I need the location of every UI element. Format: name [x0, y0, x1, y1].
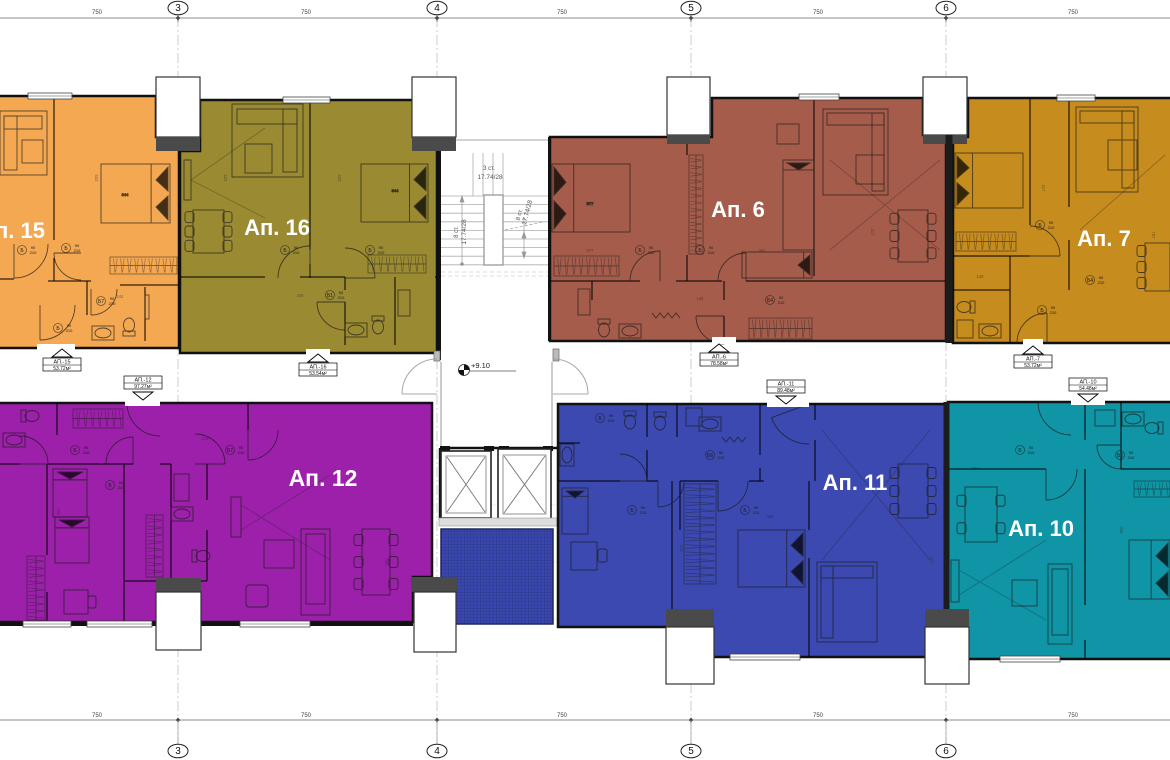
svg-text:3 ст.: 3 ст. — [483, 166, 495, 172]
svg-text:Ап. 16: Ап. 16 — [244, 215, 310, 240]
svg-text:4: 4 — [434, 3, 440, 14]
svg-text:Б6: Б6 — [707, 453, 713, 459]
svg-text:6: 6 — [943, 746, 949, 757]
svg-text:Ап. 7: Ап. 7 — [1077, 226, 1131, 251]
svg-text:210: 210 — [66, 328, 73, 333]
svg-text:414: 414 — [679, 545, 684, 553]
svg-text:97.27м²: 97.27м² — [134, 384, 152, 390]
svg-text:89.48м²: 89.48м² — [777, 388, 795, 394]
svg-text:53.54м²: 53.54м² — [309, 371, 327, 377]
svg-text:АП.-16: АП.-16 — [309, 365, 326, 371]
svg-text:244: 244 — [117, 294, 125, 299]
svg-text:Б7: Б7 — [98, 299, 104, 305]
svg-text:750: 750 — [92, 10, 103, 16]
svg-text:417: 417 — [929, 557, 934, 565]
svg-text:210: 210 — [1048, 225, 1055, 230]
svg-text:750: 750 — [813, 713, 824, 719]
svg-text:317: 317 — [870, 229, 875, 237]
svg-text:345: 345 — [384, 559, 389, 567]
svg-text:750: 750 — [301, 10, 312, 16]
svg-text:Ап. 6: Ап. 6 — [711, 197, 765, 222]
svg-text:750: 750 — [557, 713, 568, 719]
svg-text:53.72м²: 53.72м² — [53, 366, 71, 372]
svg-text:750: 750 — [1068, 10, 1079, 16]
svg-text:210: 210 — [718, 455, 725, 460]
svg-text:54.48м²: 54.48м² — [1079, 386, 1097, 392]
svg-text:248: 248 — [297, 293, 305, 298]
svg-text:210: 210 — [378, 250, 385, 255]
svg-text:210: 210 — [708, 250, 715, 255]
svg-text:210: 210 — [293, 250, 300, 255]
svg-text:577: 577 — [587, 248, 595, 253]
svg-text:417: 417 — [1041, 185, 1046, 193]
svg-text:210: 210 — [1128, 455, 1135, 460]
svg-text:Б7: Б7 — [227, 448, 233, 454]
svg-text:АП.-6: АП.-6 — [712, 355, 726, 361]
svg-text:17.74/28: 17.74/28 — [461, 219, 468, 245]
svg-text:522: 522 — [223, 175, 228, 183]
svg-text:АП.-12: АП.-12 — [134, 378, 151, 384]
svg-text:210: 210 — [83, 450, 90, 455]
svg-text:Ап. 11: Ап. 11 — [823, 470, 888, 495]
svg-text:6: 6 — [943, 3, 949, 14]
svg-text:3: 3 — [175, 3, 181, 14]
svg-text:210: 210 — [238, 450, 245, 455]
svg-text:Ап. 10: Ап. 10 — [1008, 516, 1074, 541]
svg-text:АП.-11: АП.-11 — [778, 382, 795, 388]
svg-text:757: 757 — [1151, 232, 1156, 240]
svg-text:АП.-7: АП.-7 — [1026, 357, 1040, 363]
svg-text:АП.-15: АП.-15 — [53, 360, 70, 366]
svg-text:148: 148 — [697, 296, 705, 301]
svg-text:210: 210 — [1098, 280, 1105, 285]
svg-text:210: 210 — [640, 510, 647, 515]
svg-text:216: 216 — [202, 436, 210, 441]
svg-text:Б4: Б4 — [1087, 278, 1093, 284]
svg-text:АП.-10: АП.-10 — [1079, 380, 1096, 386]
svg-text:750: 750 — [1068, 713, 1079, 719]
svg-text:+9.10: +9.10 — [471, 361, 490, 370]
svg-text:210: 210 — [109, 301, 116, 306]
svg-text:17.74/28: 17.74/28 — [477, 174, 503, 181]
svg-text:210: 210 — [648, 250, 655, 255]
svg-text:358: 358 — [767, 514, 775, 519]
svg-text:344: 344 — [122, 192, 129, 197]
svg-text:210: 210 — [608, 418, 615, 423]
svg-text:345: 345 — [56, 509, 61, 517]
svg-text:210: 210 — [30, 250, 37, 255]
svg-text:750: 750 — [557, 10, 568, 16]
svg-text:210: 210 — [753, 510, 760, 515]
svg-text:4: 4 — [434, 746, 440, 757]
svg-text:5: 5 — [688, 3, 694, 14]
svg-text:210: 210 — [74, 248, 81, 253]
svg-text:522: 522 — [337, 175, 342, 183]
svg-text:148: 148 — [977, 274, 985, 279]
svg-text:3: 3 — [175, 746, 181, 757]
svg-text:п. 15: п. 15 — [0, 218, 45, 243]
svg-text:Б1: Б1 — [327, 293, 333, 299]
svg-text:750: 750 — [813, 10, 824, 16]
svg-text:750: 750 — [301, 713, 312, 719]
svg-text:78.58м²: 78.58м² — [710, 361, 728, 367]
svg-text:53.72м²: 53.72м² — [1024, 363, 1042, 369]
svg-text:750: 750 — [92, 713, 103, 719]
svg-text:210: 210 — [778, 300, 785, 305]
svg-text:Б4: Б4 — [767, 298, 773, 304]
svg-text:210: 210 — [1050, 310, 1057, 315]
svg-text:362: 362 — [759, 248, 767, 253]
svg-text:210: 210 — [338, 295, 345, 300]
svg-text:522: 522 — [94, 175, 99, 183]
svg-text:Б6: Б6 — [1117, 453, 1123, 459]
svg-text:344: 344 — [392, 188, 399, 193]
svg-text:5: 5 — [688, 746, 694, 757]
svg-text:577: 577 — [587, 201, 594, 206]
svg-text:Ап. 12: Ап. 12 — [289, 465, 358, 491]
svg-text:345: 345 — [1119, 527, 1124, 535]
svg-text:8 ст.: 8 ст. — [454, 226, 460, 238]
svg-text:334: 334 — [972, 466, 980, 471]
svg-text:210: 210 — [1028, 450, 1035, 455]
svg-text:210: 210 — [118, 485, 125, 490]
